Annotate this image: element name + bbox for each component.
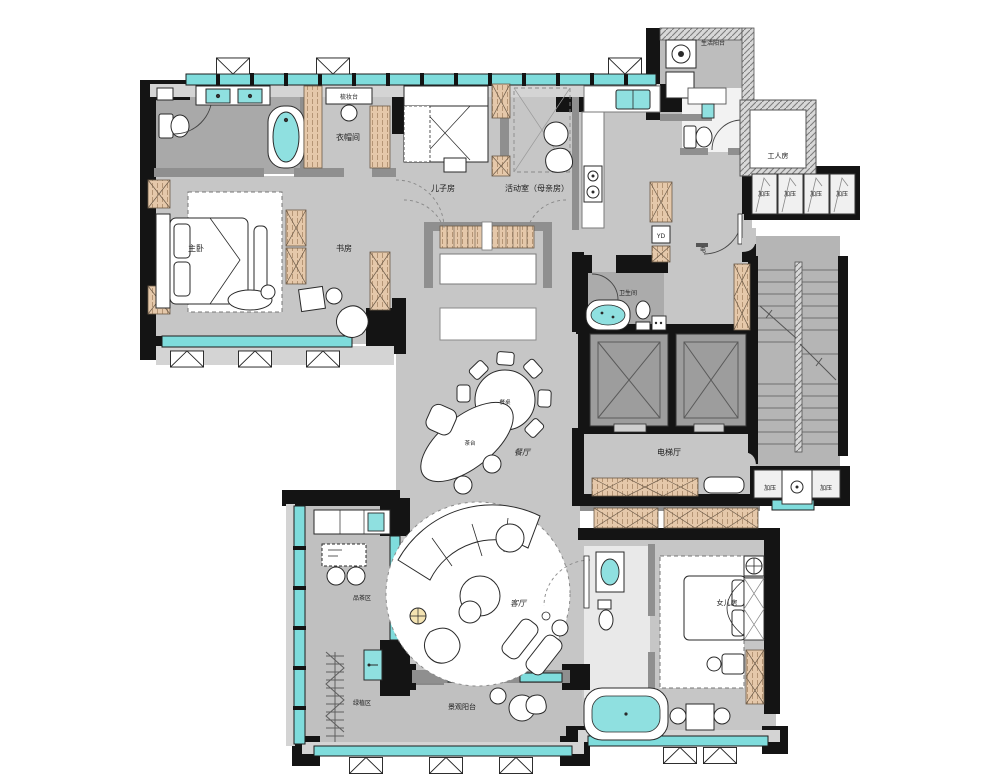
table-icon	[686, 704, 714, 730]
label-tea-table: 茶台	[464, 439, 476, 447]
armchair-icon	[336, 306, 368, 338]
planter-icon	[526, 695, 546, 714]
label-pressure-1: 加压	[758, 190, 770, 198]
label-yd: YD	[656, 233, 666, 240]
bench-icon	[704, 477, 744, 493]
wardrobe-icon	[744, 578, 764, 640]
console-table	[440, 254, 536, 284]
stool-icon	[327, 567, 345, 585]
balcony-sink-icon	[368, 513, 384, 531]
stool-icon	[341, 105, 357, 121]
label-worker-room: 工人房	[768, 151, 789, 160]
wardrobe-icon	[746, 650, 764, 704]
stool-icon	[490, 688, 506, 704]
desk-chair-icon	[326, 288, 342, 304]
label-pressure-5: 加压	[764, 484, 776, 492]
stool-icon	[483, 455, 501, 473]
pillow-icon	[732, 610, 744, 636]
label-cloak-room: 衣帽间	[336, 132, 360, 142]
basin-icon	[652, 316, 666, 330]
label-daughter-room: 女儿房	[717, 598, 738, 607]
label-pressure-6: 加压	[820, 484, 832, 492]
sink-icon	[702, 104, 714, 118]
label-view-balcony: 景观阳台	[448, 702, 476, 711]
sink-icon	[601, 559, 619, 585]
stair-stringer	[795, 262, 802, 452]
night-table	[444, 158, 466, 172]
elevator-door	[614, 424, 646, 432]
toilet-icon	[636, 301, 650, 319]
worker-room	[740, 100, 816, 176]
stool-icon	[670, 708, 686, 724]
label-tea-area: 品茶区	[353, 594, 371, 602]
beanbag-icon	[546, 148, 573, 172]
wardrobe-icon	[370, 106, 390, 168]
elevator-door	[694, 424, 724, 432]
label-son-room: 儿子房	[431, 183, 455, 193]
tea-desk	[322, 544, 366, 566]
label-dressing-table: 梳妆台	[340, 93, 358, 101]
headboard	[156, 214, 170, 308]
side-table-icon	[552, 620, 568, 636]
armchair-icon	[424, 628, 460, 663]
toilet-icon	[684, 126, 696, 148]
toilet-icon	[599, 610, 613, 630]
counter	[688, 88, 726, 104]
desk-icon	[299, 286, 326, 311]
label-life-balcony: 生活阳台	[701, 39, 725, 47]
label-master-bedroom: 主卧	[188, 243, 204, 253]
label-living-room: 客厅	[510, 599, 528, 608]
wardrobe-icon	[304, 86, 322, 168]
master-bedroom	[148, 180, 282, 314]
floor-plan-page: 生活阳台 工人房 加压 加压 加压 加压 梳妆台 衣帽间 主卧 书房 儿子房 活…	[0, 0, 1000, 783]
hall-table	[440, 308, 536, 340]
stool-icon	[347, 567, 365, 585]
cabinet-icon	[734, 264, 750, 330]
desk-icon	[722, 654, 744, 674]
label-dining-room: 餐厅	[514, 448, 532, 457]
label-pressure-4: 加压	[836, 190, 848, 198]
pressure-box	[754, 470, 782, 498]
pillow-icon	[174, 262, 190, 296]
ottoman-icon	[496, 524, 524, 552]
parapet-wall	[660, 28, 742, 40]
stool-icon	[454, 476, 472, 494]
label-pressure-2: 加压	[784, 190, 796, 198]
floor-plan-drawing: 生活阳台 工人房 加压 加压 加压 加压 梳妆台 衣帽间 主卧 书房 儿子房 活…	[0, 0, 1000, 783]
entry-door-leaf	[738, 214, 742, 244]
label-elevator-hall: 电梯厅	[657, 447, 681, 457]
table-icon	[544, 122, 568, 146]
pressure-box	[812, 470, 840, 498]
bookcase-icon	[370, 252, 390, 310]
desk-chair-icon	[707, 657, 721, 671]
label-dining-table: 餐桌	[499, 398, 511, 406]
door-leaf	[584, 556, 589, 608]
label-bathroom: 卫生间	[619, 289, 637, 297]
label-pressure-3: 加压	[810, 190, 822, 198]
label-plant-area: 绿植区	[353, 699, 371, 707]
stool-icon	[714, 708, 730, 724]
label-electric: 电	[700, 246, 706, 254]
elevators	[590, 334, 746, 432]
label-activity-room: 活动室（母亲房）	[505, 183, 569, 193]
label-study: 书房	[336, 243, 352, 253]
